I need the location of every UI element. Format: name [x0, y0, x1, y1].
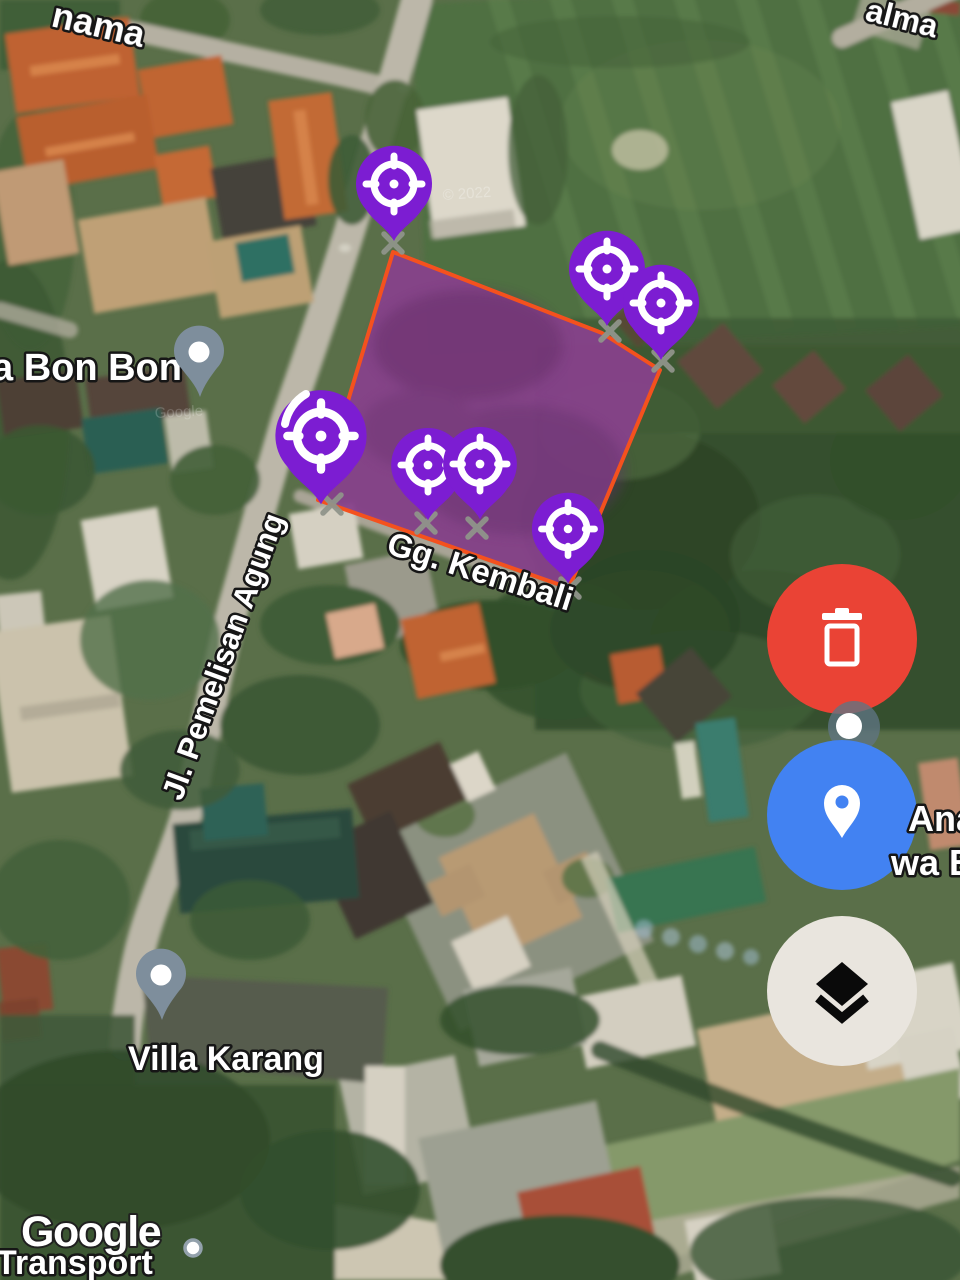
svg-text:© 2022: © 2022: [442, 184, 492, 204]
svg-text:a Bon Bon: a Bon Bon: [0, 347, 182, 389]
svg-text:Ana: Ana: [908, 798, 960, 839]
svg-text:Google: Google: [21, 1208, 161, 1256]
svg-text:Google: Google: [154, 402, 203, 422]
svg-text:Villa Karang: Villa Karang: [128, 1040, 324, 1078]
svg-text:wa B: wa B: [890, 842, 960, 883]
